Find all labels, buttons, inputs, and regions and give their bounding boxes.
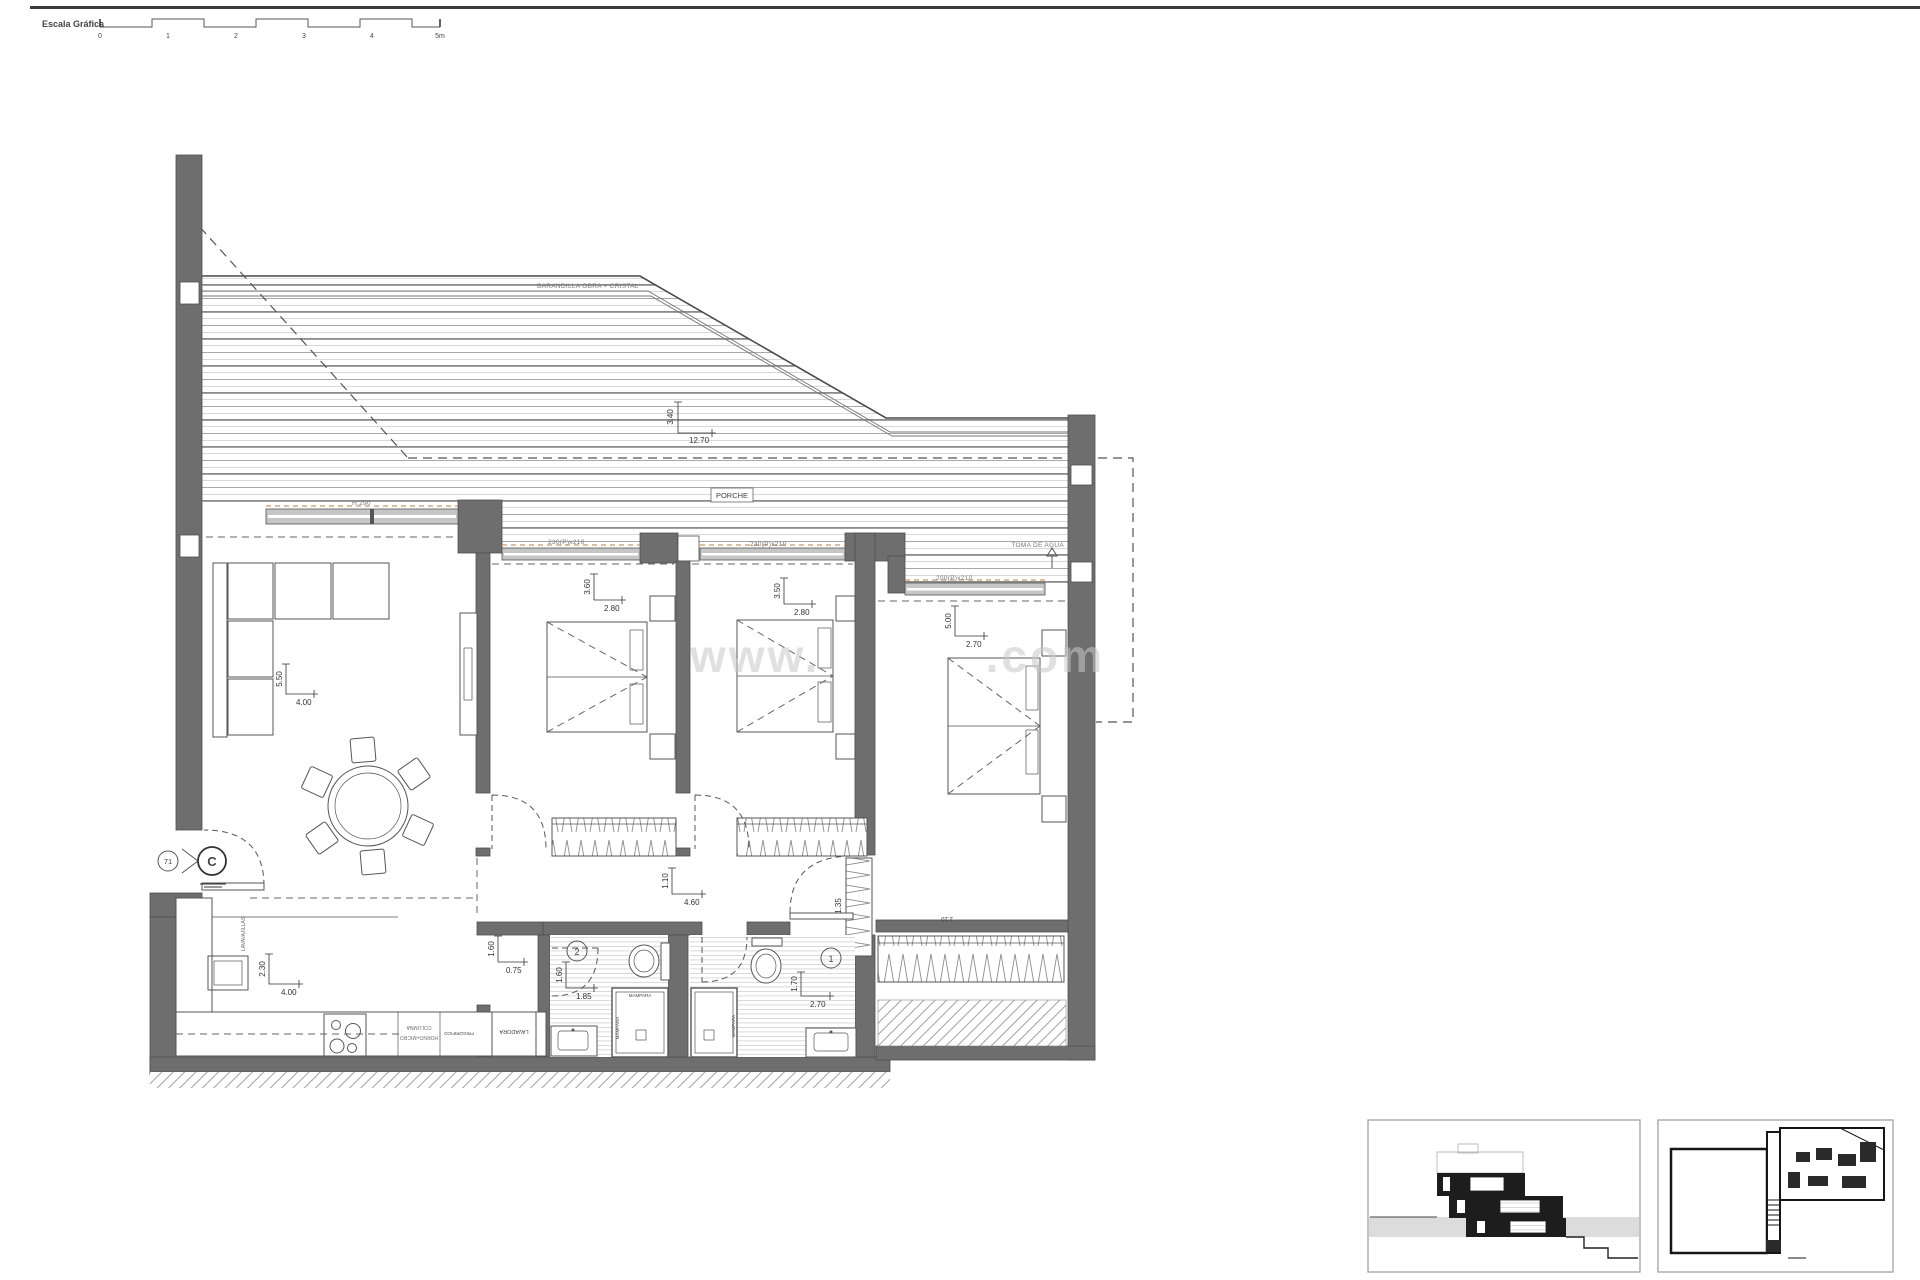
window-bed2-label: 230(P)x210 <box>750 541 787 548</box>
living-dim-lines <box>282 664 318 698</box>
water-tap-label: TOMA DE AGUA <box>1011 542 1064 549</box>
master-door-leaf <box>790 913 853 919</box>
wall-living-bed1 <box>476 553 490 793</box>
laundry-dim-lines <box>494 936 528 966</box>
sofa-seat-1 <box>228 563 273 619</box>
bath2-toilet-tank <box>661 943 670 980</box>
sofa-back <box>213 563 227 737</box>
east-column-window-a <box>1071 465 1092 485</box>
bed2-depth-dim: 3.50 <box>773 583 782 599</box>
watermark-prefix: www. <box>689 630 820 682</box>
living-room: 5.50 4.00 <box>213 563 477 875</box>
oven-column-label-2: HORNO+MICRO <box>400 1034 438 1040</box>
kitchen-dim-lines <box>265 954 303 988</box>
bath1-depth-dim: 1.70 <box>790 976 799 992</box>
window-bed2-glass <box>702 553 843 556</box>
wall-southeast <box>876 1046 1095 1060</box>
section-gap-1 <box>1443 1177 1450 1191</box>
bed1-width-dim: 2.80 <box>604 604 620 613</box>
window-living-label: H:290 <box>352 500 371 507</box>
bedroom-2: 3.50 2.80 <box>695 578 867 856</box>
wall-bed1-bed2-stub <box>676 848 690 856</box>
scale-tick-3: 3 <box>302 33 306 40</box>
bath2-faucet <box>572 1029 575 1032</box>
scale-tick-2: 2 <box>234 33 238 40</box>
master-width-dim: 2.70 <box>966 640 982 649</box>
tv-sideboard <box>460 613 477 735</box>
wall-west-lower <box>150 917 176 1075</box>
laundry-depth-dim: 1.60 <box>487 941 496 957</box>
master-closet-width-dim: 2.10 <box>941 915 953 921</box>
living-depth-dim: 5.50 <box>275 671 284 687</box>
bed1-dim-lines <box>590 574 626 604</box>
window-master-label: 200(P)x210 <box>936 575 973 582</box>
dining-chairs <box>301 737 434 875</box>
graphic-scale: Escala Gráfica 0 1 2 3 4 5m <box>42 19 445 40</box>
east-column-window-b <box>1071 562 1092 582</box>
sofa-chaise-1 <box>275 563 331 619</box>
bath2-screen-label-h: MAMPARA <box>629 993 651 998</box>
wall-bath2-top <box>543 922 702 935</box>
kitchen-sink-inner <box>214 961 242 985</box>
wall-bath1-top <box>747 922 790 935</box>
wall-bath2-bath1 <box>668 935 688 1057</box>
bed1-door <box>492 795 546 849</box>
section-gap-3 <box>1477 1221 1485 1233</box>
keyplan-terrace-outline <box>1671 1149 1767 1253</box>
watermark: www. .com <box>689 630 1105 682</box>
pier-living-bed1 <box>458 500 502 553</box>
keyplan-core-wall <box>1767 1132 1780 1253</box>
master-closet-depth-dim: 1.35 <box>834 898 843 914</box>
pier-bed1-bed2 <box>640 533 678 563</box>
top-rule <box>30 6 1920 9</box>
bed1-nightstand-b <box>650 734 675 759</box>
scale-tick-5: 5m <box>435 33 445 40</box>
section-gap-2 <box>1457 1200 1465 1213</box>
window-living-mullion <box>370 509 374 524</box>
laundry-width-dim: 0.75 <box>506 966 522 975</box>
oven-column-label-1: COLUMNA <box>406 1024 432 1030</box>
bed1-depth-dim: 3.60 <box>583 579 592 595</box>
west-column-window-b <box>180 535 199 557</box>
bath2-width-dim: 1.85 <box>576 992 592 1001</box>
sofa-chaise-2 <box>333 563 389 619</box>
west-column-window-a <box>180 282 199 304</box>
living-width-dim: 4.00 <box>296 698 312 707</box>
wall-living-bed1-stub <box>476 848 490 856</box>
wall-south <box>150 1057 890 1072</box>
kitchen-width-dim: 4.00 <box>281 988 297 997</box>
hall-width-dim: 4.60 <box>684 898 700 907</box>
section-letter: C <box>207 854 217 869</box>
bathroom-2: 2 1.60 1.85 MAMPARA MAMPARA <box>550 935 670 1057</box>
watermark-suffix: .com <box>986 630 1105 682</box>
master-depth-dim: 5.00 <box>944 613 953 629</box>
scale-end-ticks <box>100 19 440 27</box>
openplan-boundary <box>250 858 477 917</box>
keyplan-apartment-block <box>1780 1128 1884 1200</box>
inset-section-view <box>1368 1120 1640 1272</box>
wall-laundry-top <box>477 922 543 935</box>
bed2-nightstand-b <box>836 734 855 759</box>
floorplan-page: Escala Gráfica 0 1 2 3 4 5m BARANDILLA O… <box>0 0 1920 1280</box>
hall: 1.10 4.60 <box>661 868 706 907</box>
terrace-width-dim: 12.70 <box>689 436 710 445</box>
sofa-seat-2 <box>228 621 273 677</box>
wall-master-bottom <box>876 920 1068 932</box>
scale-tick-4: 4 <box>370 33 374 40</box>
section-window-1 <box>1470 1177 1504 1191</box>
sofa-seat-3 <box>228 679 273 735</box>
bath1-faucet <box>830 1031 833 1034</box>
entry: 71 C <box>158 830 264 890</box>
bath1-width-dim: 2.70 <box>810 1000 826 1009</box>
wall-east <box>1068 415 1095 1060</box>
pier-bed2-master-leg <box>888 556 905 593</box>
section-number: 71 <box>164 857 172 866</box>
ground-hatch-southeast <box>878 1000 1066 1046</box>
window-master-glass <box>907 588 1043 591</box>
bed2-width-dim: 2.80 <box>794 608 810 617</box>
master-door-arc <box>790 856 853 913</box>
section-arrow-icon <box>182 849 198 873</box>
bath1-screen-label: MAMPARA <box>731 1015 736 1037</box>
window-bed1-glass <box>504 553 638 556</box>
dining-table-inner <box>335 773 401 839</box>
bathroom-1: MAMPARA 1 1.70 2.70 <box>690 935 856 1057</box>
column-bed1-bed2 <box>678 536 699 561</box>
inset-key-plan <box>1658 1120 1893 1272</box>
bath2-depth-dim: 1.60 <box>555 967 564 983</box>
hall-dim-lines <box>668 868 706 898</box>
bed1-nightstand-a <box>650 596 675 621</box>
washer-label: LAVADORA <box>499 1028 528 1034</box>
master-nightstand-b <box>1042 796 1066 822</box>
bedroom-1: 3.60 2.80 <box>492 574 676 856</box>
bath2-shower <box>612 988 668 1057</box>
section-window-3 <box>1510 1221 1546 1233</box>
terrace-depth-dim: 3.40 <box>666 409 675 425</box>
scale-tick-0: 0 <box>98 33 102 40</box>
wall-bed2-master <box>855 533 875 855</box>
window-bed1-label: 230(P)x210 <box>548 539 585 546</box>
scale-label: Escala Gráfica <box>42 19 105 29</box>
floor-plan-drawing: Escala Gráfica 0 1 2 3 4 5m BARANDILLA O… <box>0 0 1920 1280</box>
dishwasher-label: LAVAVAJILLAS <box>241 916 247 951</box>
porch-label: PORCHE <box>716 491 748 500</box>
dining-table <box>328 766 408 846</box>
wall-bed1-bed2 <box>676 561 690 793</box>
ground-hatch-south <box>150 1072 890 1088</box>
bath2-screen-label-v: MAMPARA <box>615 1017 620 1039</box>
bed2-dim-lines <box>780 578 816 608</box>
section-window-2 <box>1500 1200 1540 1213</box>
fridge-label: FRIGORIFICO <box>444 1031 474 1036</box>
master-dim-lines <box>951 606 988 640</box>
hall-depth-dim: 1.10 <box>661 873 670 889</box>
bath1-toilet-tank <box>752 938 782 946</box>
scale-tick-1: 1 <box>166 33 170 40</box>
railing-label: BARANDILLA OBRA + CRISTAL <box>537 283 639 290</box>
wall-west-upper <box>176 155 202 830</box>
kitchen-counter-west <box>176 898 212 1012</box>
scale-steps <box>100 19 440 27</box>
keyplan-entry-block <box>1766 1240 1781 1252</box>
window-living-glass <box>268 515 456 518</box>
bath1-number: 1 <box>828 954 833 964</box>
kitchen-depth-dim: 2.30 <box>258 961 267 977</box>
bed2-nightstand-a <box>836 596 855 621</box>
